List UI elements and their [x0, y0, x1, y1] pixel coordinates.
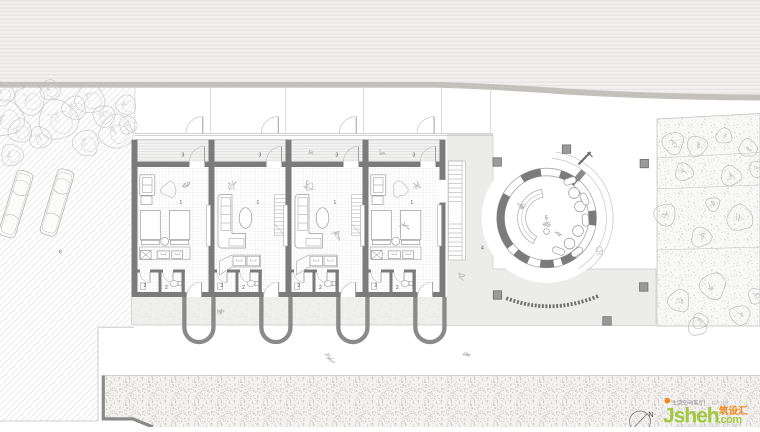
svg-text:2: 2 [221, 283, 224, 289]
svg-text:2: 2 [165, 285, 168, 291]
svg-text:3: 3 [413, 153, 416, 159]
svg-text:5: 5 [545, 216, 548, 222]
svg-text:N: N [649, 412, 654, 419]
svg-text:3: 3 [336, 153, 339, 159]
svg-text:2: 2 [144, 283, 147, 289]
svg-text:1: 1 [411, 200, 414, 206]
svg-text:2: 2 [375, 283, 378, 289]
svg-text:www.jsheh.com 筑设汇设计素材: www.jsheh.com 筑设汇设计素材 [676, 422, 741, 427]
svg-text:2: 2 [319, 285, 322, 291]
svg-text:1: 1 [334, 200, 337, 206]
svg-text:3: 3 [182, 153, 185, 159]
svg-text:1: 1 [180, 200, 183, 206]
svg-text:4: 4 [481, 246, 484, 252]
svg-text:6: 6 [59, 250, 62, 256]
svg-text:1: 1 [257, 200, 260, 206]
svg-text:3: 3 [259, 153, 262, 159]
svg-text:2: 2 [298, 283, 301, 289]
svg-text:2: 2 [396, 285, 399, 291]
svg-text:2: 2 [242, 285, 245, 291]
